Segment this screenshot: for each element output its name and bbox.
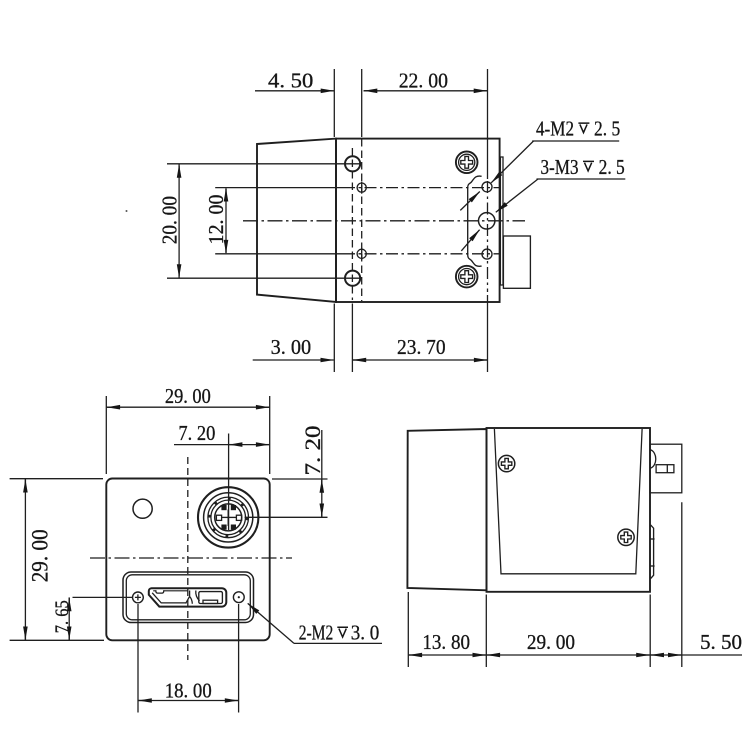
svg-text:22. 00: 22. 00 bbox=[399, 69, 448, 93]
svg-text:2. 5: 2. 5 bbox=[599, 155, 625, 179]
svg-text:4-M2: 4-M2 bbox=[536, 117, 574, 141]
svg-text:5. 50: 5. 50 bbox=[700, 630, 742, 654]
svg-text:2. 5: 2. 5 bbox=[594, 117, 620, 141]
svg-text:3. 00: 3. 00 bbox=[271, 335, 312, 359]
svg-text:18. 00: 18. 00 bbox=[165, 679, 212, 703]
svg-text:3. 0: 3. 0 bbox=[351, 620, 380, 644]
svg-text:13. 80: 13. 80 bbox=[422, 630, 470, 654]
svg-text:23. 70: 23. 70 bbox=[397, 335, 446, 359]
svg-text:3-M3: 3-M3 bbox=[541, 155, 579, 179]
svg-text:4. 50: 4. 50 bbox=[268, 69, 313, 93]
svg-text:2-M2: 2-M2 bbox=[299, 620, 334, 644]
svg-text:29. 00: 29. 00 bbox=[527, 630, 575, 654]
svg-text:29. 00: 29. 00 bbox=[165, 384, 211, 408]
svg-text:20. 00: 20. 00 bbox=[157, 196, 181, 244]
svg-text:29. 00: 29. 00 bbox=[28, 529, 53, 582]
svg-text:7. 20: 7. 20 bbox=[178, 421, 215, 445]
svg-text:7. 65: 7. 65 bbox=[52, 600, 73, 633]
svg-text:12. 00: 12. 00 bbox=[204, 195, 228, 245]
svg-text:7. 20: 7. 20 bbox=[300, 426, 325, 476]
